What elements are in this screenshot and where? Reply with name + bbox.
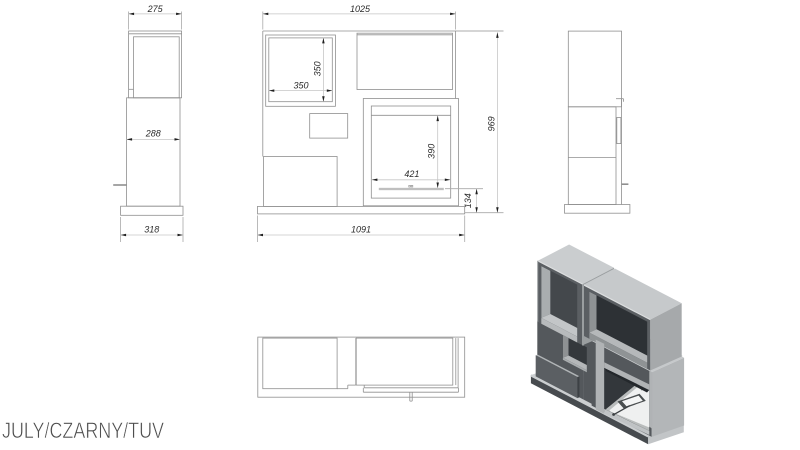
- svg-text:275: 275: [147, 4, 164, 14]
- svg-text:JULY/CZARNY/TUV: JULY/CZARNY/TUV: [2, 418, 164, 443]
- svg-text:1091: 1091: [351, 224, 371, 234]
- svg-text:350: 350: [312, 61, 322, 76]
- svg-text:134: 134: [463, 193, 473, 208]
- svg-text:350: 350: [293, 80, 308, 90]
- svg-text:318: 318: [144, 224, 159, 234]
- svg-text:1025: 1025: [350, 4, 371, 14]
- svg-text:421: 421: [404, 169, 419, 179]
- svg-text:390: 390: [427, 144, 437, 159]
- svg-text:288: 288: [145, 128, 161, 138]
- svg-text:969: 969: [486, 116, 496, 131]
